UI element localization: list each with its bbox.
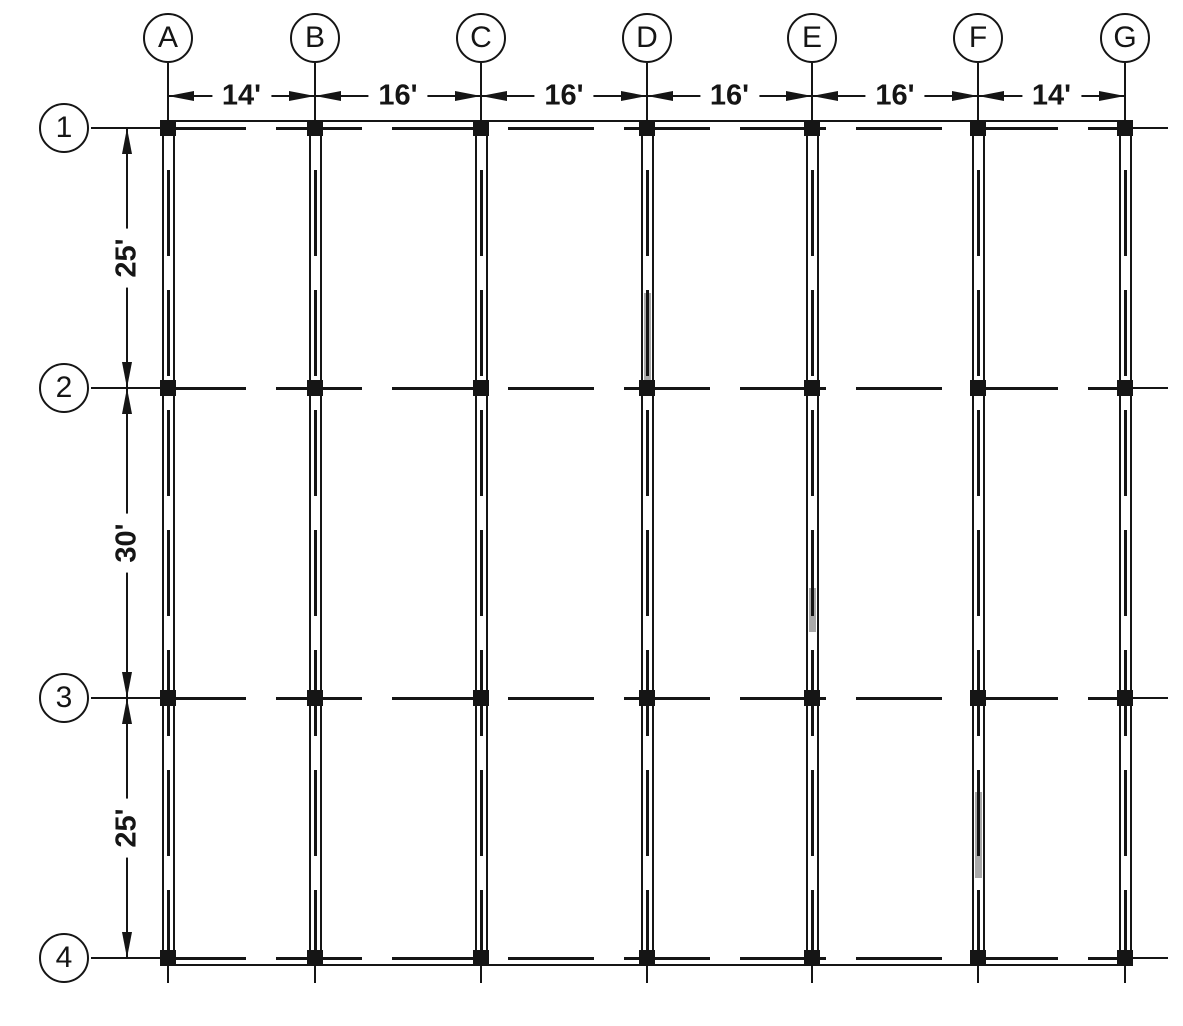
grid-bubble-1: 1 [39,103,89,153]
dim-arrow-left-icon [168,91,194,101]
dim-label-left-1: 30' [111,513,144,572]
column-marker-B1 [307,120,323,136]
grid-tail-B [314,966,316,983]
column-marker-G2 [1117,380,1133,396]
dim-arrow-left-icon [481,91,507,101]
column-marker-F2 [970,380,986,396]
grid-bubble-2: 2 [39,363,89,413]
grid-tail-G [1124,966,1126,983]
column-marker-A4 [160,950,176,966]
column-marker-D4 [639,950,655,966]
row-tail-2 [1133,387,1168,389]
grid-bubble-label: 2 [56,373,73,403]
dim-label-top-2: 16' [534,80,593,113]
grid-bubble-label: E [802,23,822,53]
dim-label-left-0: 25' [111,228,144,287]
grid-centerline-D [646,136,649,950]
column-marker-C2 [473,380,489,396]
dim-arrow-right-icon [455,91,481,101]
dim-label-top-1: 16' [368,80,427,113]
column-marker-E2 [804,380,820,396]
grid-tail-D [646,966,648,983]
column-marker-F3 [970,690,986,706]
column-marker-G1 [1117,120,1133,136]
column-marker-G3 [1117,690,1133,706]
column-marker-B3 [307,690,323,706]
grid-bubble-D: D [622,13,672,63]
grid-tail-E [811,966,813,983]
grid-centerline-F [977,136,980,950]
row-tail-1 [1133,127,1168,129]
grid-bubble-G: G [1100,13,1150,63]
column-marker-C1 [473,120,489,136]
grid-tail-C [480,966,482,983]
grid-tail-F [977,966,979,983]
dim-label-top-5: 14' [1022,80,1081,113]
grid-centerline-E [811,136,814,950]
column-marker-G4 [1117,950,1133,966]
framing-plan-canvas: ABCDEFG123414'16'16'16'16'14'25'30'25' [0,0,1183,1026]
grid-bubble-label: 3 [56,683,73,713]
column-marker-E4 [804,950,820,966]
column-marker-F1 [970,120,986,136]
grid-tail-A [167,966,169,983]
grid-bubble-label: D [636,23,658,53]
dim-arrow-up-icon [122,128,132,154]
dim-arrow-right-icon [1099,91,1125,101]
dim-label-top-4: 16' [865,80,924,113]
column-marker-F4 [970,950,986,966]
dim-arrow-up-icon [122,698,132,724]
grid-bubble-C: C [456,13,506,63]
grid-bubble-label: G [1113,23,1136,53]
dim-arrow-down-icon [122,362,132,388]
grid-bubble-label: 1 [56,113,73,143]
column-marker-E3 [804,690,820,706]
grid-bubble-B: B [290,13,340,63]
grid-bubble-label: F [969,23,987,53]
row-tail-4 [1133,957,1168,959]
column-marker-D2 [639,380,655,396]
grid-bubble-F: F [953,13,1003,63]
dim-arrow-left-icon [812,91,838,101]
column-marker-C4 [473,950,489,966]
column-marker-A2 [160,380,176,396]
grid-bubble-label: 4 [56,943,73,973]
row-tail-3 [1133,697,1168,699]
grid-bubble-label: C [470,23,492,53]
dim-arrow-right-icon [786,91,812,101]
grid-bubble-A: A [143,13,193,63]
dim-arrow-down-icon [122,672,132,698]
column-marker-B4 [307,950,323,966]
column-marker-D3 [639,690,655,706]
grid-centerline-B [314,136,317,950]
dim-label-top-0: 14' [212,80,271,113]
dim-label-top-3: 16' [700,80,759,113]
grid-centerline-G [1124,136,1127,950]
column-marker-D1 [639,120,655,136]
column-marker-A3 [160,690,176,706]
dim-arrow-down-icon [122,932,132,958]
dim-arrow-right-icon [952,91,978,101]
dim-arrow-right-icon [621,91,647,101]
grid-bubble-label: A [158,23,178,53]
column-marker-E1 [804,120,820,136]
dim-arrow-right-icon [289,91,315,101]
column-marker-C3 [473,690,489,706]
grid-centerline-C [480,136,483,950]
dim-label-left-2: 25' [111,798,144,857]
grid-bubble-3: 3 [39,673,89,723]
dim-arrow-left-icon [978,91,1004,101]
grid-bubble-E: E [787,13,837,63]
grid-centerline-A [167,136,170,950]
column-marker-A1 [160,120,176,136]
dim-arrow-up-icon [122,388,132,414]
dim-arrow-left-icon [647,91,673,101]
column-marker-B2 [307,380,323,396]
grid-bubble-label: B [305,23,325,53]
dim-arrow-left-icon [315,91,341,101]
grid-bubble-4: 4 [39,933,89,983]
